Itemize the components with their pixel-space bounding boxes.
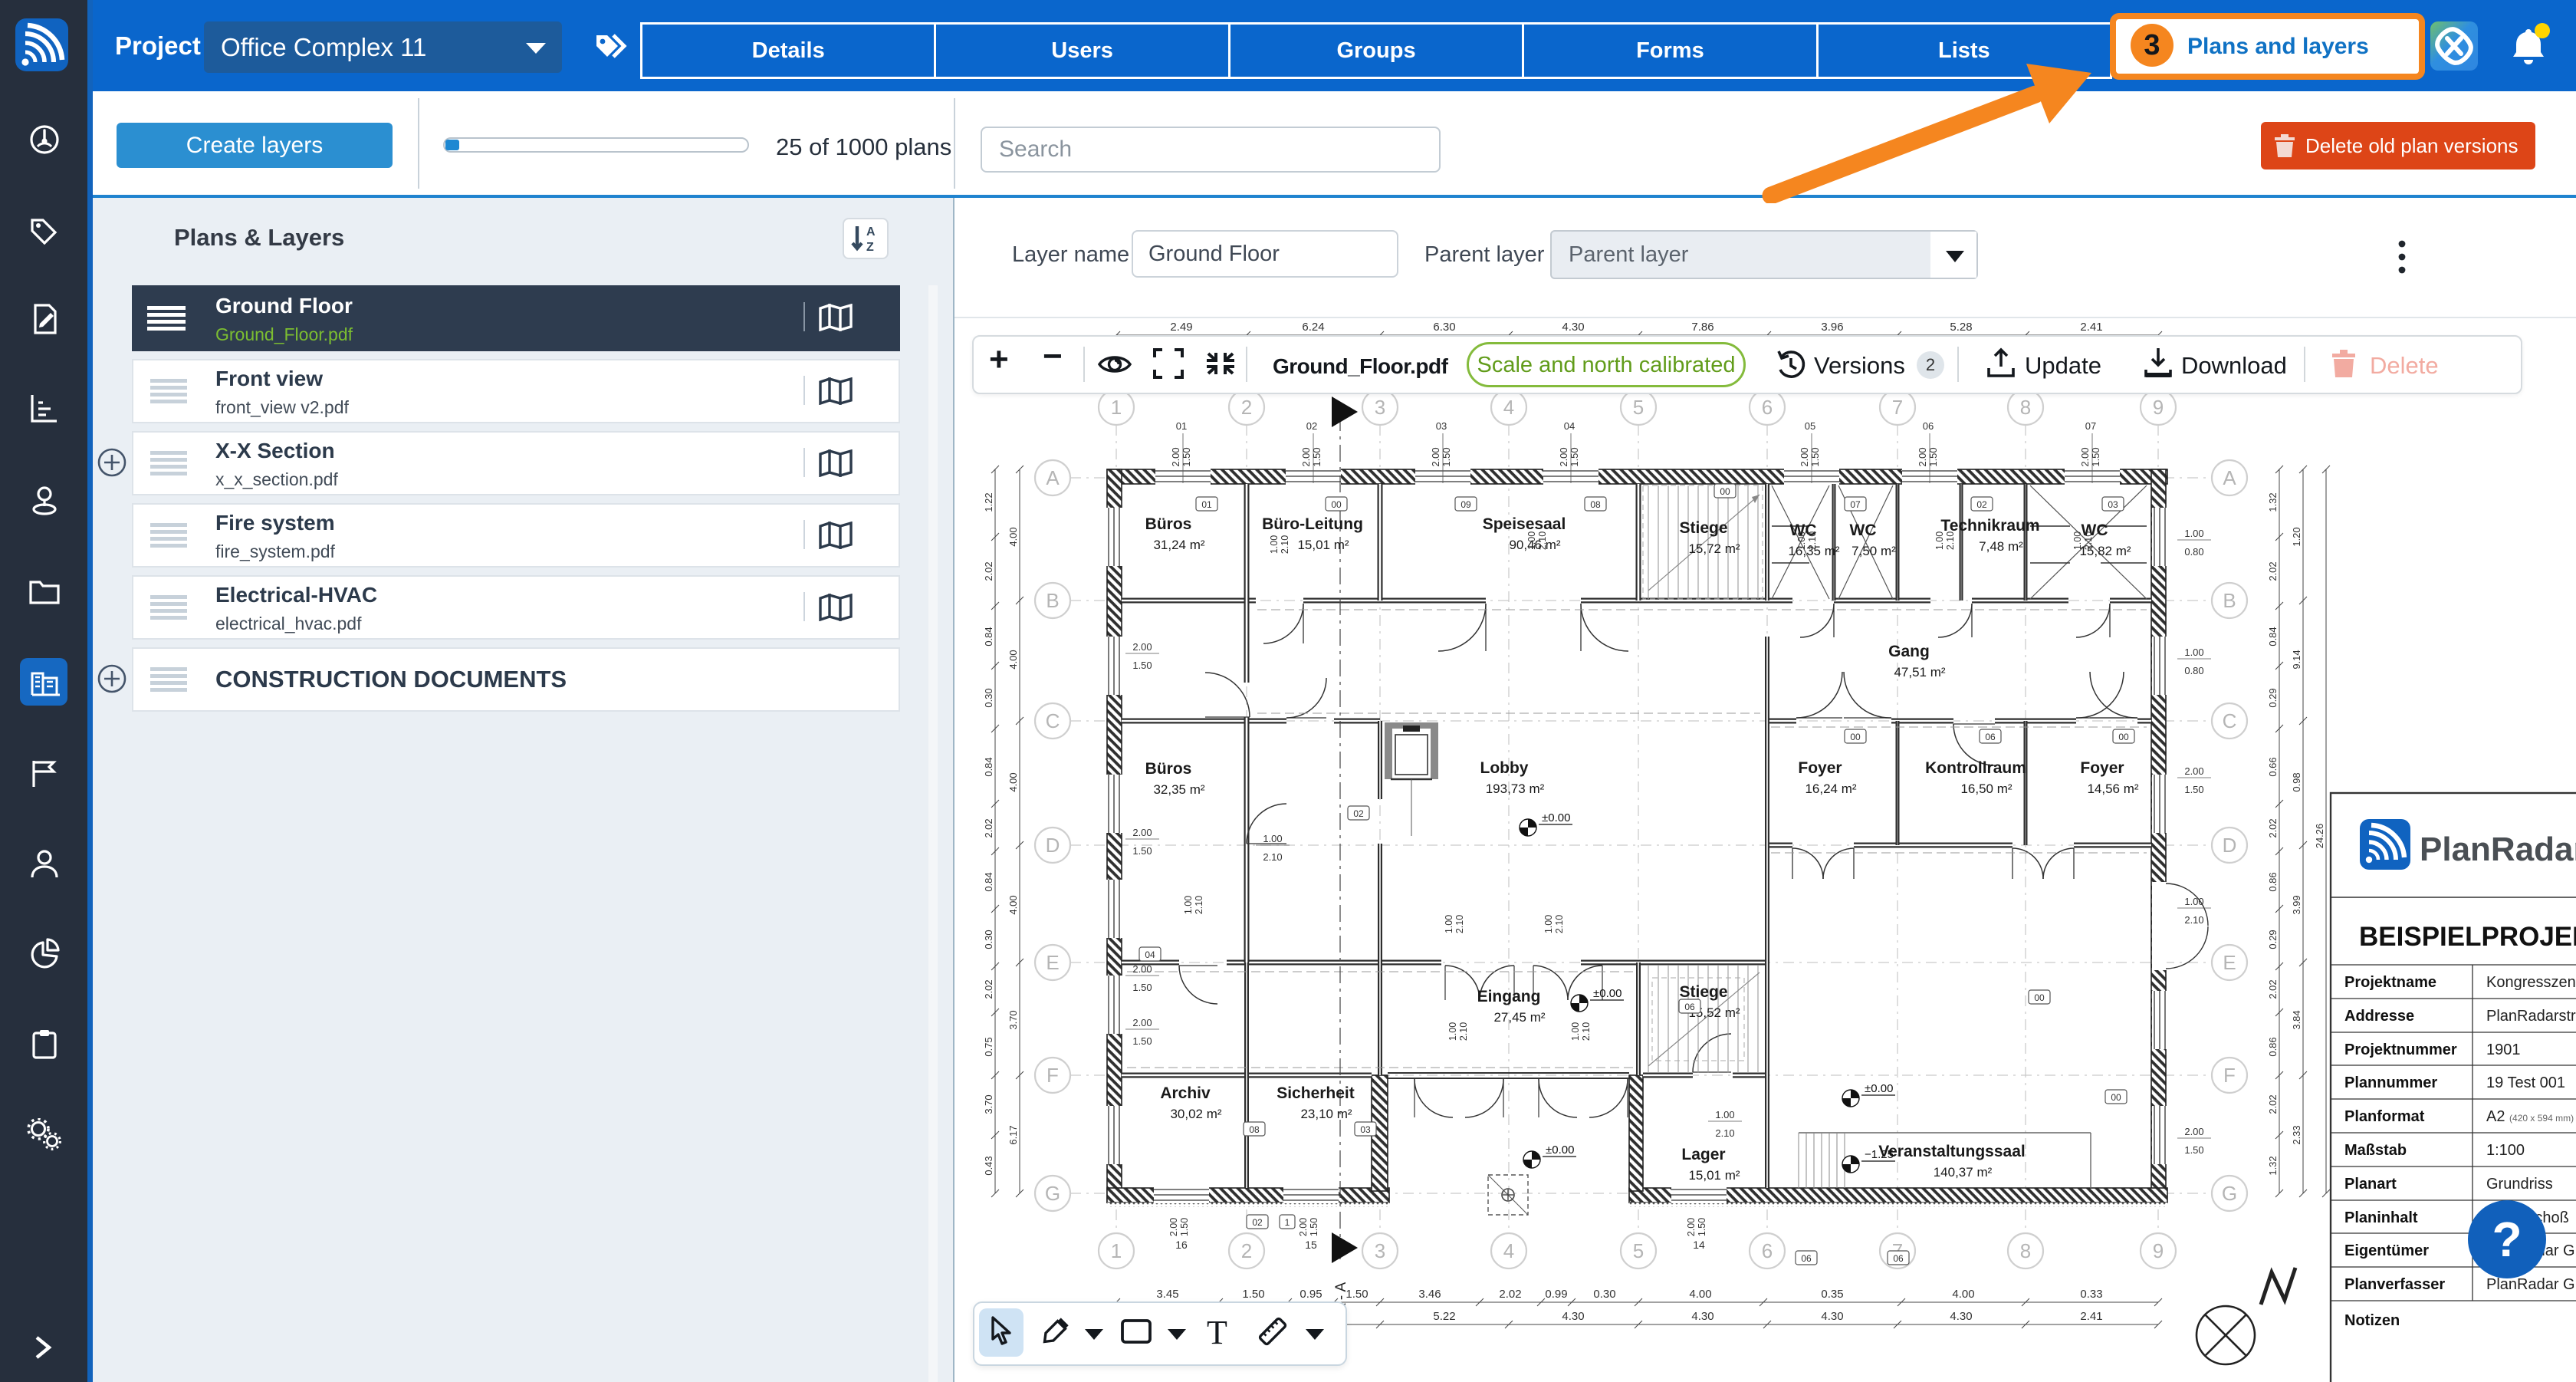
svg-text:F: F	[1046, 1064, 1059, 1087]
svg-text:3.96: 3.96	[1821, 321, 1843, 334]
svg-text:Stiege: Stiege	[1679, 519, 1727, 537]
svg-text:3.70: 3.70	[1007, 1010, 1019, 1029]
svg-text:2.33: 2.33	[2291, 1125, 2302, 1144]
svg-text:2.02: 2.02	[983, 818, 994, 837]
svg-text:5: 5	[1633, 1239, 1644, 1262]
svg-text:2.00: 2.00	[2079, 447, 2091, 466]
svg-text:0.43: 0.43	[983, 1156, 994, 1175]
svg-text:08: 08	[1590, 499, 1601, 510]
svg-text:140,37 m²: 140,37 m²	[1934, 1165, 1993, 1180]
svg-text:1.22: 1.22	[983, 492, 994, 512]
svg-text:2.00: 2.00	[1917, 447, 1928, 466]
svg-text:Planformat: Planformat	[2344, 1108, 2425, 1125]
svg-text:27,45 m²: 27,45 m²	[1493, 1010, 1545, 1025]
svg-text:1.00: 1.00	[1543, 915, 1554, 933]
svg-text:4.00: 4.00	[1007, 527, 1019, 546]
svg-text:2.10: 2.10	[1454, 915, 1465, 933]
svg-text:4: 4	[1503, 1239, 1514, 1262]
svg-text:9.14: 9.14	[2291, 650, 2302, 669]
svg-text:2.00: 2.00	[1300, 447, 1312, 466]
svg-text:9: 9	[2153, 1239, 2164, 1262]
svg-text:2.02: 2.02	[2267, 561, 2279, 581]
svg-text:4.00: 4.00	[1007, 895, 1019, 914]
svg-text:2.00: 2.00	[1132, 963, 1152, 975]
svg-text:Addresse: Addresse	[2344, 1008, 2414, 1025]
svg-text:3.46: 3.46	[1418, 1288, 1441, 1301]
svg-text:E: E	[2223, 951, 2236, 974]
svg-text:08: 08	[1249, 1124, 1260, 1135]
svg-text:00: 00	[2034, 992, 2045, 1003]
svg-text:C: C	[2223, 709, 2237, 732]
svg-text:2.02: 2.02	[2267, 818, 2279, 837]
svg-text:4.30: 4.30	[1691, 1310, 1714, 1323]
svg-text:Speisesaal: Speisesaal	[1483, 515, 1566, 533]
svg-text:0.84: 0.84	[983, 757, 994, 776]
svg-text:7,50 m²: 7,50 m²	[1852, 544, 1896, 558]
svg-text:PlanRadar GmbH: PlanRadar GmbH	[2486, 1276, 2576, 1293]
svg-text:00: 00	[1850, 732, 1861, 742]
svg-text:1.50: 1.50	[1132, 1035, 1152, 1047]
svg-text:2.10: 2.10	[2083, 531, 2094, 550]
svg-text:0.35: 0.35	[1821, 1288, 1843, 1301]
svg-text:2.10: 2.10	[1807, 531, 1818, 550]
svg-text:5.22: 5.22	[1433, 1310, 1455, 1323]
svg-text:2.49: 2.49	[1170, 321, 1192, 334]
svg-text:2.02: 2.02	[2267, 979, 2279, 999]
svg-text:3.99: 3.99	[2291, 895, 2302, 914]
svg-text:1.00: 1.00	[1444, 915, 1454, 933]
svg-text:06: 06	[1801, 1253, 1812, 1264]
svg-text:2.10: 2.10	[1715, 1127, 1734, 1139]
svg-text:Eigentümer: Eigentümer	[2344, 1242, 2429, 1259]
svg-text:Maßstab: Maßstab	[2344, 1142, 2407, 1159]
svg-text:0.99: 0.99	[1545, 1288, 1567, 1301]
svg-text:Stiege: Stiege	[1679, 983, 1727, 1001]
svg-text:6.24: 6.24	[1302, 321, 1324, 334]
svg-text:1.00: 1.00	[1183, 896, 1194, 914]
svg-text:Archiv: Archiv	[1160, 1084, 1211, 1102]
svg-text:1.50: 1.50	[1311, 447, 1322, 466]
svg-text:1: 1	[1111, 1239, 1122, 1262]
svg-text:D: D	[1046, 834, 1060, 857]
svg-text:1.00: 1.00	[2184, 896, 2203, 907]
svg-text:1.00: 1.00	[1934, 531, 1945, 550]
svg-text:1.00: 1.00	[1796, 531, 1807, 550]
svg-text:A: A	[866, 225, 876, 239]
svg-text:Planart: Planart	[2344, 1176, 2397, 1193]
svg-text:Projektnummer: Projektnummer	[2344, 1041, 2457, 1058]
svg-text:4.00: 4.00	[1007, 650, 1019, 669]
svg-text:3: 3	[1375, 1239, 1385, 1262]
svg-text:03: 03	[1436, 420, 1447, 432]
svg-text:Planinhalt: Planinhalt	[2344, 1209, 2418, 1226]
svg-text:D: D	[2223, 834, 2237, 857]
svg-text:3.70: 3.70	[983, 1094, 994, 1114]
svg-text:0.30: 0.30	[983, 930, 994, 949]
svg-text:6.30: 6.30	[1433, 321, 1455, 334]
svg-text:2.00: 2.00	[1686, 1218, 1697, 1236]
svg-text:8: 8	[2020, 1239, 2031, 1262]
svg-text:1:100: 1:100	[2486, 1142, 2525, 1159]
svg-text:2.00: 2.00	[1132, 1017, 1152, 1028]
svg-text:6.17: 6.17	[1007, 1125, 1019, 1144]
svg-text:09: 09	[1460, 499, 1471, 510]
svg-text:4.30: 4.30	[1821, 1310, 1843, 1323]
svg-text:03: 03	[2108, 499, 2118, 510]
svg-text:0.29: 0.29	[2267, 930, 2279, 949]
svg-text:2.00: 2.00	[1799, 447, 1810, 466]
svg-text:02: 02	[1306, 420, 1317, 432]
svg-text:B: B	[2223, 589, 2236, 612]
svg-text:2.10: 2.10	[1458, 1022, 1469, 1041]
svg-text:±0.00: ±0.00	[1865, 1082, 1893, 1095]
svg-text:2.00: 2.00	[1430, 447, 1441, 466]
svg-text:02: 02	[1976, 499, 1987, 510]
svg-text:00: 00	[1331, 499, 1342, 510]
svg-text:2.00: 2.00	[1132, 827, 1152, 838]
svg-text:Veranstaltungssaal: Veranstaltungssaal	[1878, 1143, 2025, 1160]
svg-text:0.30: 0.30	[983, 688, 994, 707]
svg-text:16,50 m²: 16,50 m²	[1960, 781, 2012, 796]
svg-text:01: 01	[1201, 499, 1212, 510]
svg-text:1.00: 1.00	[1263, 833, 1282, 844]
svg-text:Kongresszentrum: Kongresszentrum	[2486, 974, 2576, 991]
svg-text:Büros: Büros	[1145, 515, 1192, 533]
svg-text:04: 04	[1564, 420, 1575, 432]
svg-text:4.00: 4.00	[1689, 1288, 1711, 1301]
svg-text:1.20: 1.20	[2291, 527, 2302, 546]
svg-text:2.10: 2.10	[2184, 914, 2203, 926]
svg-text:0.86: 0.86	[2267, 872, 2279, 891]
svg-text:1.50: 1.50	[1132, 845, 1152, 857]
svg-text:Eingang: Eingang	[1477, 988, 1541, 1005]
svg-text:0.80: 0.80	[2184, 546, 2203, 558]
svg-text:2.41: 2.41	[2080, 321, 2102, 334]
svg-text:8: 8	[2020, 396, 2031, 419]
svg-text:2: 2	[1241, 396, 1252, 419]
svg-text:6: 6	[1762, 1239, 1773, 1262]
svg-text:1.50: 1.50	[1181, 447, 1192, 466]
svg-text:0.33: 0.33	[2080, 1288, 2102, 1301]
svg-text:PlanRadar: PlanRadar	[2420, 831, 2576, 868]
svg-text:F: F	[2223, 1064, 2236, 1087]
svg-text:Planverfasser: Planverfasser	[2344, 1276, 2445, 1293]
svg-text:15,72 m²: 15,72 m²	[1688, 541, 1740, 556]
svg-text:1.50: 1.50	[1132, 982, 1152, 993]
svg-text:2.00: 2.00	[1558, 447, 1569, 466]
svg-text:1.50: 1.50	[1809, 447, 1821, 466]
svg-text:06: 06	[1923, 420, 1934, 432]
svg-text:2.00: 2.00	[1170, 447, 1181, 466]
svg-text:1.50: 1.50	[2184, 784, 2203, 795]
svg-text:32,35 m²: 32,35 m²	[1153, 782, 1204, 797]
svg-text:Lobby: Lobby	[1480, 759, 1529, 777]
svg-text:Foyer: Foyer	[2080, 759, 2124, 777]
svg-text:B: B	[1046, 589, 1059, 612]
svg-text:06: 06	[1684, 1002, 1695, 1012]
svg-text:16: 16	[1175, 1239, 1188, 1251]
svg-text:1.50: 1.50	[1309, 1218, 1319, 1236]
svg-text:−1.25: −1.25	[1865, 1148, 1894, 1161]
svg-text:1.32: 1.32	[2267, 1156, 2279, 1175]
svg-text:1.50: 1.50	[1441, 447, 1452, 466]
svg-text:1901: 1901	[2486, 1041, 2521, 1058]
svg-text:3: 3	[1375, 396, 1385, 419]
svg-text:1.00: 1.00	[2072, 531, 2083, 550]
svg-text:00: 00	[2118, 732, 2129, 742]
svg-text:Z: Z	[866, 241, 874, 252]
svg-text:04: 04	[1145, 949, 1155, 960]
svg-text:2.02: 2.02	[983, 979, 994, 999]
svg-text:15,01 m²: 15,01 m²	[1688, 1168, 1740, 1183]
svg-text:1: 1	[1285, 1217, 1290, 1228]
svg-text:Sicherheit: Sicherheit	[1276, 1084, 1355, 1102]
svg-text:Grundriss: Grundriss	[2486, 1176, 2553, 1193]
svg-text:06: 06	[1985, 732, 1996, 742]
svg-text:1: 1	[1111, 396, 1122, 419]
svg-text:2: 2	[1241, 1239, 1252, 1262]
svg-text:15,01 m²: 15,01 m²	[1297, 538, 1349, 552]
svg-text:00: 00	[2111, 1092, 2121, 1103]
svg-text:5.28: 5.28	[1950, 321, 1972, 334]
svg-text:±0.00: ±0.00	[1546, 1143, 1574, 1157]
svg-text:2.10: 2.10	[1263, 851, 1282, 863]
svg-text:7: 7	[1892, 396, 1903, 419]
svg-text:2.00: 2.00	[2184, 765, 2203, 777]
svg-text:2.10: 2.10	[1554, 915, 1565, 933]
svg-text:1.50: 1.50	[1927, 447, 1939, 466]
svg-text:0.84: 0.84	[2267, 627, 2279, 646]
svg-text:02: 02	[1353, 808, 1364, 819]
svg-text:7.86: 7.86	[1691, 321, 1714, 334]
svg-text:2.00: 2.00	[1132, 641, 1152, 653]
svg-text:±0.00: ±0.00	[1593, 987, 1621, 1000]
svg-text:1.50: 1.50	[2090, 447, 2101, 466]
svg-text:14: 14	[1693, 1239, 1705, 1251]
svg-text:23,10 m²: 23,10 m²	[1300, 1107, 1352, 1121]
svg-text:1.00: 1.00	[1269, 535, 1280, 554]
svg-text:1.50: 1.50	[1569, 447, 1580, 466]
svg-text:1.00: 1.00	[2184, 647, 2203, 658]
svg-text:G: G	[2222, 1182, 2237, 1205]
svg-text:2.00: 2.00	[2184, 1126, 2203, 1137]
svg-text:Foyer: Foyer	[1798, 759, 1842, 777]
svg-text:Kontrollraum: Kontrollraum	[1925, 759, 2026, 777]
svg-text:G: G	[1045, 1182, 1060, 1205]
svg-text:1.50: 1.50	[1179, 1218, 1190, 1236]
svg-text:Notizen: Notizen	[2344, 1312, 2400, 1329]
svg-text:03: 03	[1360, 1124, 1371, 1135]
svg-text:2.10: 2.10	[1581, 1022, 1592, 1041]
svg-text:0.84: 0.84	[983, 872, 994, 891]
svg-text:A: A	[2223, 466, 2236, 489]
svg-text:4: 4	[1503, 396, 1514, 419]
svg-text:BEISPIELPROJEKT: BEISPIELPROJEKT	[2359, 922, 2576, 952]
svg-text:1.50: 1.50	[1242, 1288, 1264, 1301]
svg-text:24.26: 24.26	[2314, 824, 2325, 849]
svg-text:1.00: 1.00	[2184, 528, 2203, 539]
svg-text:2.00: 2.00	[1168, 1218, 1179, 1236]
svg-text:15: 15	[1305, 1239, 1317, 1251]
svg-text:14,56 m²: 14,56 m²	[2087, 781, 2138, 796]
svg-text:1.00: 1.00	[1447, 1022, 1458, 1041]
svg-text:7,48 m²: 7,48 m²	[1979, 539, 2023, 554]
svg-text:1.50: 1.50	[1697, 1218, 1707, 1236]
svg-text:Gang: Gang	[1888, 643, 1930, 660]
svg-text:47,51 m²: 47,51 m²	[1894, 665, 1945, 679]
svg-text:07: 07	[2085, 420, 2096, 432]
svg-text:±0.00: ±0.00	[1542, 811, 1570, 824]
svg-text:3.84: 3.84	[2291, 1010, 2302, 1029]
svg-text:1.00: 1.00	[1526, 531, 1537, 550]
svg-text:02: 02	[1252, 1217, 1263, 1228]
svg-text:0.80: 0.80	[2184, 665, 2203, 676]
svg-text:1.00: 1.00	[1570, 1022, 1581, 1041]
svg-text:E: E	[1046, 951, 1059, 974]
svg-text:31,24 m²: 31,24 m²	[1153, 538, 1204, 552]
svg-text:2.10: 2.10	[1194, 896, 1204, 914]
svg-text:0.95: 0.95	[1299, 1288, 1322, 1301]
svg-text:5: 5	[1633, 396, 1644, 419]
svg-text:0.29: 0.29	[2267, 688, 2279, 707]
svg-text:2.10: 2.10	[1945, 531, 1956, 550]
svg-text:WC: WC	[1850, 522, 1877, 539]
svg-text:9: 9	[2153, 396, 2164, 419]
svg-text:1.00: 1.00	[1715, 1109, 1734, 1120]
svg-text:6: 6	[1762, 396, 1773, 419]
svg-text:1.50: 1.50	[2184, 1144, 2203, 1156]
svg-text:0.84: 0.84	[983, 627, 994, 646]
svg-text:1.50: 1.50	[1132, 660, 1152, 671]
svg-text:0.66: 0.66	[2267, 757, 2279, 776]
svg-text:00: 00	[1720, 486, 1730, 497]
svg-text:0.98: 0.98	[2291, 772, 2302, 791]
svg-text:1.32: 1.32	[2267, 492, 2279, 512]
svg-text:Projektname: Projektname	[2344, 974, 2436, 991]
svg-text:0.86: 0.86	[2267, 1037, 2279, 1056]
svg-text:06: 06	[1893, 1253, 1904, 1264]
svg-text:4.00: 4.00	[1952, 1288, 1974, 1301]
svg-text:2.02: 2.02	[983, 561, 994, 581]
svg-text:4.00: 4.00	[1007, 772, 1019, 791]
svg-text:4.30: 4.30	[1950, 1310, 1972, 1323]
svg-text:16,24 m²: 16,24 m²	[1805, 781, 1856, 796]
svg-text:Lager: Lager	[1681, 1146, 1725, 1163]
svg-text:05: 05	[1805, 420, 1815, 432]
svg-text:2.41: 2.41	[2080, 1310, 2102, 1323]
svg-text:2.10: 2.10	[1537, 531, 1548, 550]
svg-text:2.00: 2.00	[1298, 1218, 1309, 1236]
svg-text:PlanRadarstraße: PlanRadarstraße	[2486, 1008, 2576, 1025]
svg-text:2.02: 2.02	[1499, 1288, 1521, 1301]
svg-text:30,02 m²: 30,02 m²	[1170, 1107, 1221, 1121]
svg-text:2.02: 2.02	[2267, 1094, 2279, 1114]
svg-text:07: 07	[1850, 499, 1861, 510]
svg-text:C: C	[1046, 709, 1060, 732]
svg-text:193,73 m²: 193,73 m²	[1486, 781, 1545, 796]
svg-text:A: A	[1046, 466, 1060, 489]
svg-text:19 Test 001: 19 Test 001	[2486, 1074, 2565, 1091]
svg-text:Büro-Leitung: Büro-Leitung	[1262, 515, 1363, 533]
svg-text:2.10: 2.10	[1280, 535, 1290, 554]
svg-text:Plannummer: Plannummer	[2344, 1074, 2437, 1091]
svg-text:4.30: 4.30	[1562, 1310, 1584, 1323]
svg-text:Büros: Büros	[1145, 760, 1192, 778]
svg-text:4.30: 4.30	[1562, 321, 1584, 334]
svg-text:0.30: 0.30	[1593, 1288, 1615, 1301]
svg-text:3.45: 3.45	[1156, 1288, 1178, 1301]
svg-text:01: 01	[1176, 420, 1187, 432]
svg-text:0.75: 0.75	[983, 1037, 994, 1056]
